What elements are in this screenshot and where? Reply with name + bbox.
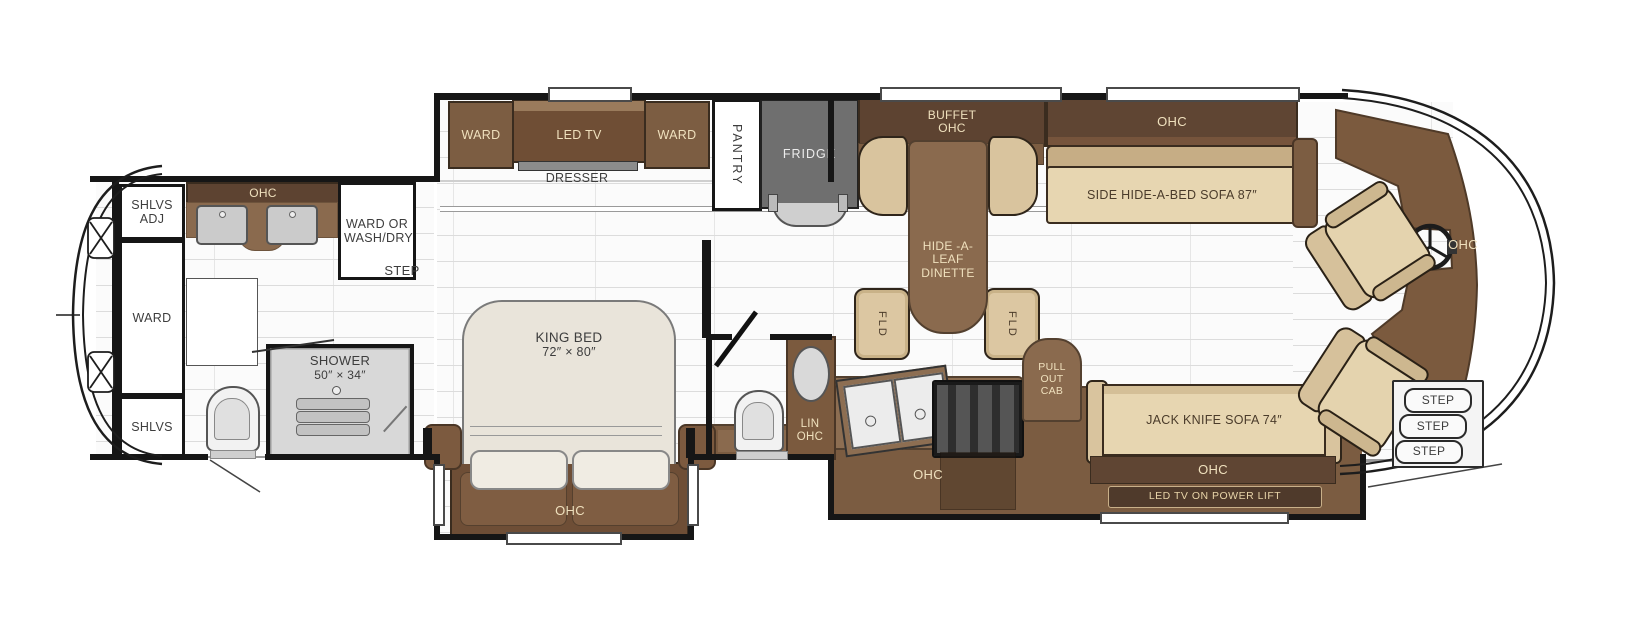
buffet-ohc-label: BUFFET OHC [917, 109, 987, 136]
window-bed-slide-side-left [433, 464, 445, 526]
dinette-chair-top-left [858, 136, 908, 216]
dinette-table-label: HIDE -A- LEAF DINETTE [919, 240, 977, 280]
dash-ohc-label: OHC [1438, 238, 1488, 253]
rear-step-label: STEP [372, 264, 432, 279]
bedroom-tv-screen [518, 161, 638, 171]
entry-step-2: STEP [1399, 414, 1467, 439]
bath-counter-island [186, 278, 258, 366]
shower-bench-slat [296, 398, 370, 410]
lin-ohc-cabinet: LIN OHC [786, 336, 836, 460]
wall-midbath-left [706, 334, 712, 458]
lin-ohc-label: LIN OHC [791, 418, 829, 444]
rear-door-swing [210, 460, 260, 492]
wall-bedslide-stub-right [686, 428, 695, 458]
king-bed-size-label: 72″ × 80″ [464, 345, 674, 359]
fridge-door-arc [772, 203, 848, 227]
entry-step-1: STEP [1404, 388, 1472, 413]
side-sofa-label: SIDE HIDE-A-BED SOFA 87″ [1087, 188, 1257, 202]
side-sofa-arm [1292, 138, 1318, 228]
kitchen-ohc-label: OHC [896, 468, 960, 483]
toilet-rear-mat [210, 450, 256, 459]
rear-vanity-ohc-label: OHC [249, 187, 277, 200]
side-sofa-seat: SIDE HIDE-A-BED SOFA 87″ [1046, 166, 1298, 224]
dinette-chair-top-right [988, 136, 1038, 216]
pull-out-cab-label: PULL OUT CAB [1032, 362, 1072, 397]
bath-sink-right [266, 205, 318, 245]
bed-pillow-right [572, 450, 670, 490]
cabinet-pantry: PANTRY [712, 99, 762, 211]
shower-corner-line [383, 406, 407, 432]
sofa-ohc-label: OHC [1157, 115, 1187, 130]
dinette-table: HIDE -A- LEAF DINETTE [908, 140, 988, 334]
wall-midbath-top-b [770, 334, 832, 340]
window-bedroom [548, 87, 632, 102]
toilet-rear-seat [214, 398, 250, 440]
shower-bench-slat [296, 411, 370, 423]
wall-rear-bottom-a [90, 454, 208, 460]
step-1-label: STEP [1422, 394, 1455, 407]
tv-power-lift: LED TV ON POWER LIFT [1108, 486, 1322, 508]
bed-pillow-left [470, 450, 568, 490]
jack-knife-sofa: JACK KNIFE SOFA 74″ [1102, 384, 1326, 456]
fld-left-label: FLD [876, 311, 888, 338]
fld-right-label: FLD [1006, 311, 1018, 338]
step-3-label: STEP [1413, 445, 1446, 458]
dresser-label: DRESSER [518, 171, 636, 185]
shower: SHOWER 50″ × 34″ [266, 344, 414, 460]
tv-power-lift-label: LED TV ON POWER LIFT [1149, 491, 1281, 503]
step-2-label: STEP [1417, 420, 1450, 433]
fridge-hinge-left [768, 194, 778, 212]
shower-size-label: 50″ × 34″ [270, 369, 410, 382]
shower-drain [332, 386, 341, 395]
midbath-mat [736, 451, 788, 460]
sofa-ohc: OHC [1046, 97, 1298, 147]
shlvs-label: SHLVS [131, 420, 173, 434]
led-tv-label: LED TV [556, 128, 601, 142]
fridge: FRIDGE [760, 99, 859, 209]
shlvs-adj-label: SHLVS ADJ [128, 198, 176, 226]
rv-floor-plan: SHLVS ADJ OHC WARD OR WASH/DRY WARD SHLV… [0, 0, 1625, 630]
bed-sheet-line [470, 426, 662, 436]
stove-cooktop [932, 380, 1024, 458]
cabinet-ward-bed-left: WARD [448, 101, 514, 169]
window-bed-slide-side-right [687, 464, 699, 526]
shower-label: SHOWER [270, 354, 410, 369]
pantry-label: PANTRY [730, 124, 744, 186]
ward-rear-label: WARD [133, 311, 172, 325]
bath-sink-left [196, 205, 248, 245]
cabinet-shlvs-adj: SHLVS ADJ [119, 184, 185, 240]
wall-rear-left [112, 176, 119, 460]
wall-rear-bottom-b [265, 454, 437, 460]
toilet-mid-seat [742, 402, 774, 440]
king-bed: KING BED 72″ × 80″ [462, 300, 676, 464]
cabinet-ward-rear: WARD [119, 240, 185, 396]
jack-sofa-label: JACK KNIFE SOFA 74″ [1146, 413, 1282, 427]
ward-bed-left-label: WARD [462, 128, 501, 142]
jack-sofa-ohc: OHC [1090, 456, 1336, 484]
wall-hallway-stub [702, 240, 711, 338]
wall-kitchen-slide-right [1360, 454, 1366, 520]
wall-kitchen-slide-left [828, 454, 834, 520]
ward-washdry-label: WARD OR WASH/DRY [344, 217, 410, 245]
ward-bed-right-label: WARD [658, 128, 697, 142]
window-kitchen-slide-bottom [1100, 512, 1289, 524]
pull-out-cab: PULL OUT CAB [1022, 338, 1082, 422]
bed-ohc-label: OHC [540, 504, 600, 519]
king-bed-label: KING BED [464, 330, 674, 345]
shower-bench-slat [296, 424, 370, 436]
wall-bedroom-slide-left [434, 93, 440, 182]
wall-bedroom-slide-right [828, 93, 834, 182]
jack-sofa-ohc-label: OHC [1198, 463, 1228, 478]
cabinet-shlvs: SHLVS [119, 396, 185, 458]
cabinet-ward-bed-right: WARD [644, 101, 710, 169]
dinette-chair-fld-left: FLD [854, 288, 910, 360]
bedroom-tv-cabinet: LED TV [512, 99, 646, 163]
kitchen-sink-basin-left [843, 379, 901, 449]
window-dinette [880, 87, 1062, 102]
fridge-hinge-right [838, 194, 848, 212]
wall-rear-top [90, 176, 437, 182]
wall-bedslide-stub-left [423, 428, 432, 458]
window-sofa [1106, 87, 1300, 102]
entry-step-3: STEP [1395, 440, 1463, 464]
window-bed-slide-bottom [506, 532, 622, 545]
midbath-sink [792, 346, 830, 402]
